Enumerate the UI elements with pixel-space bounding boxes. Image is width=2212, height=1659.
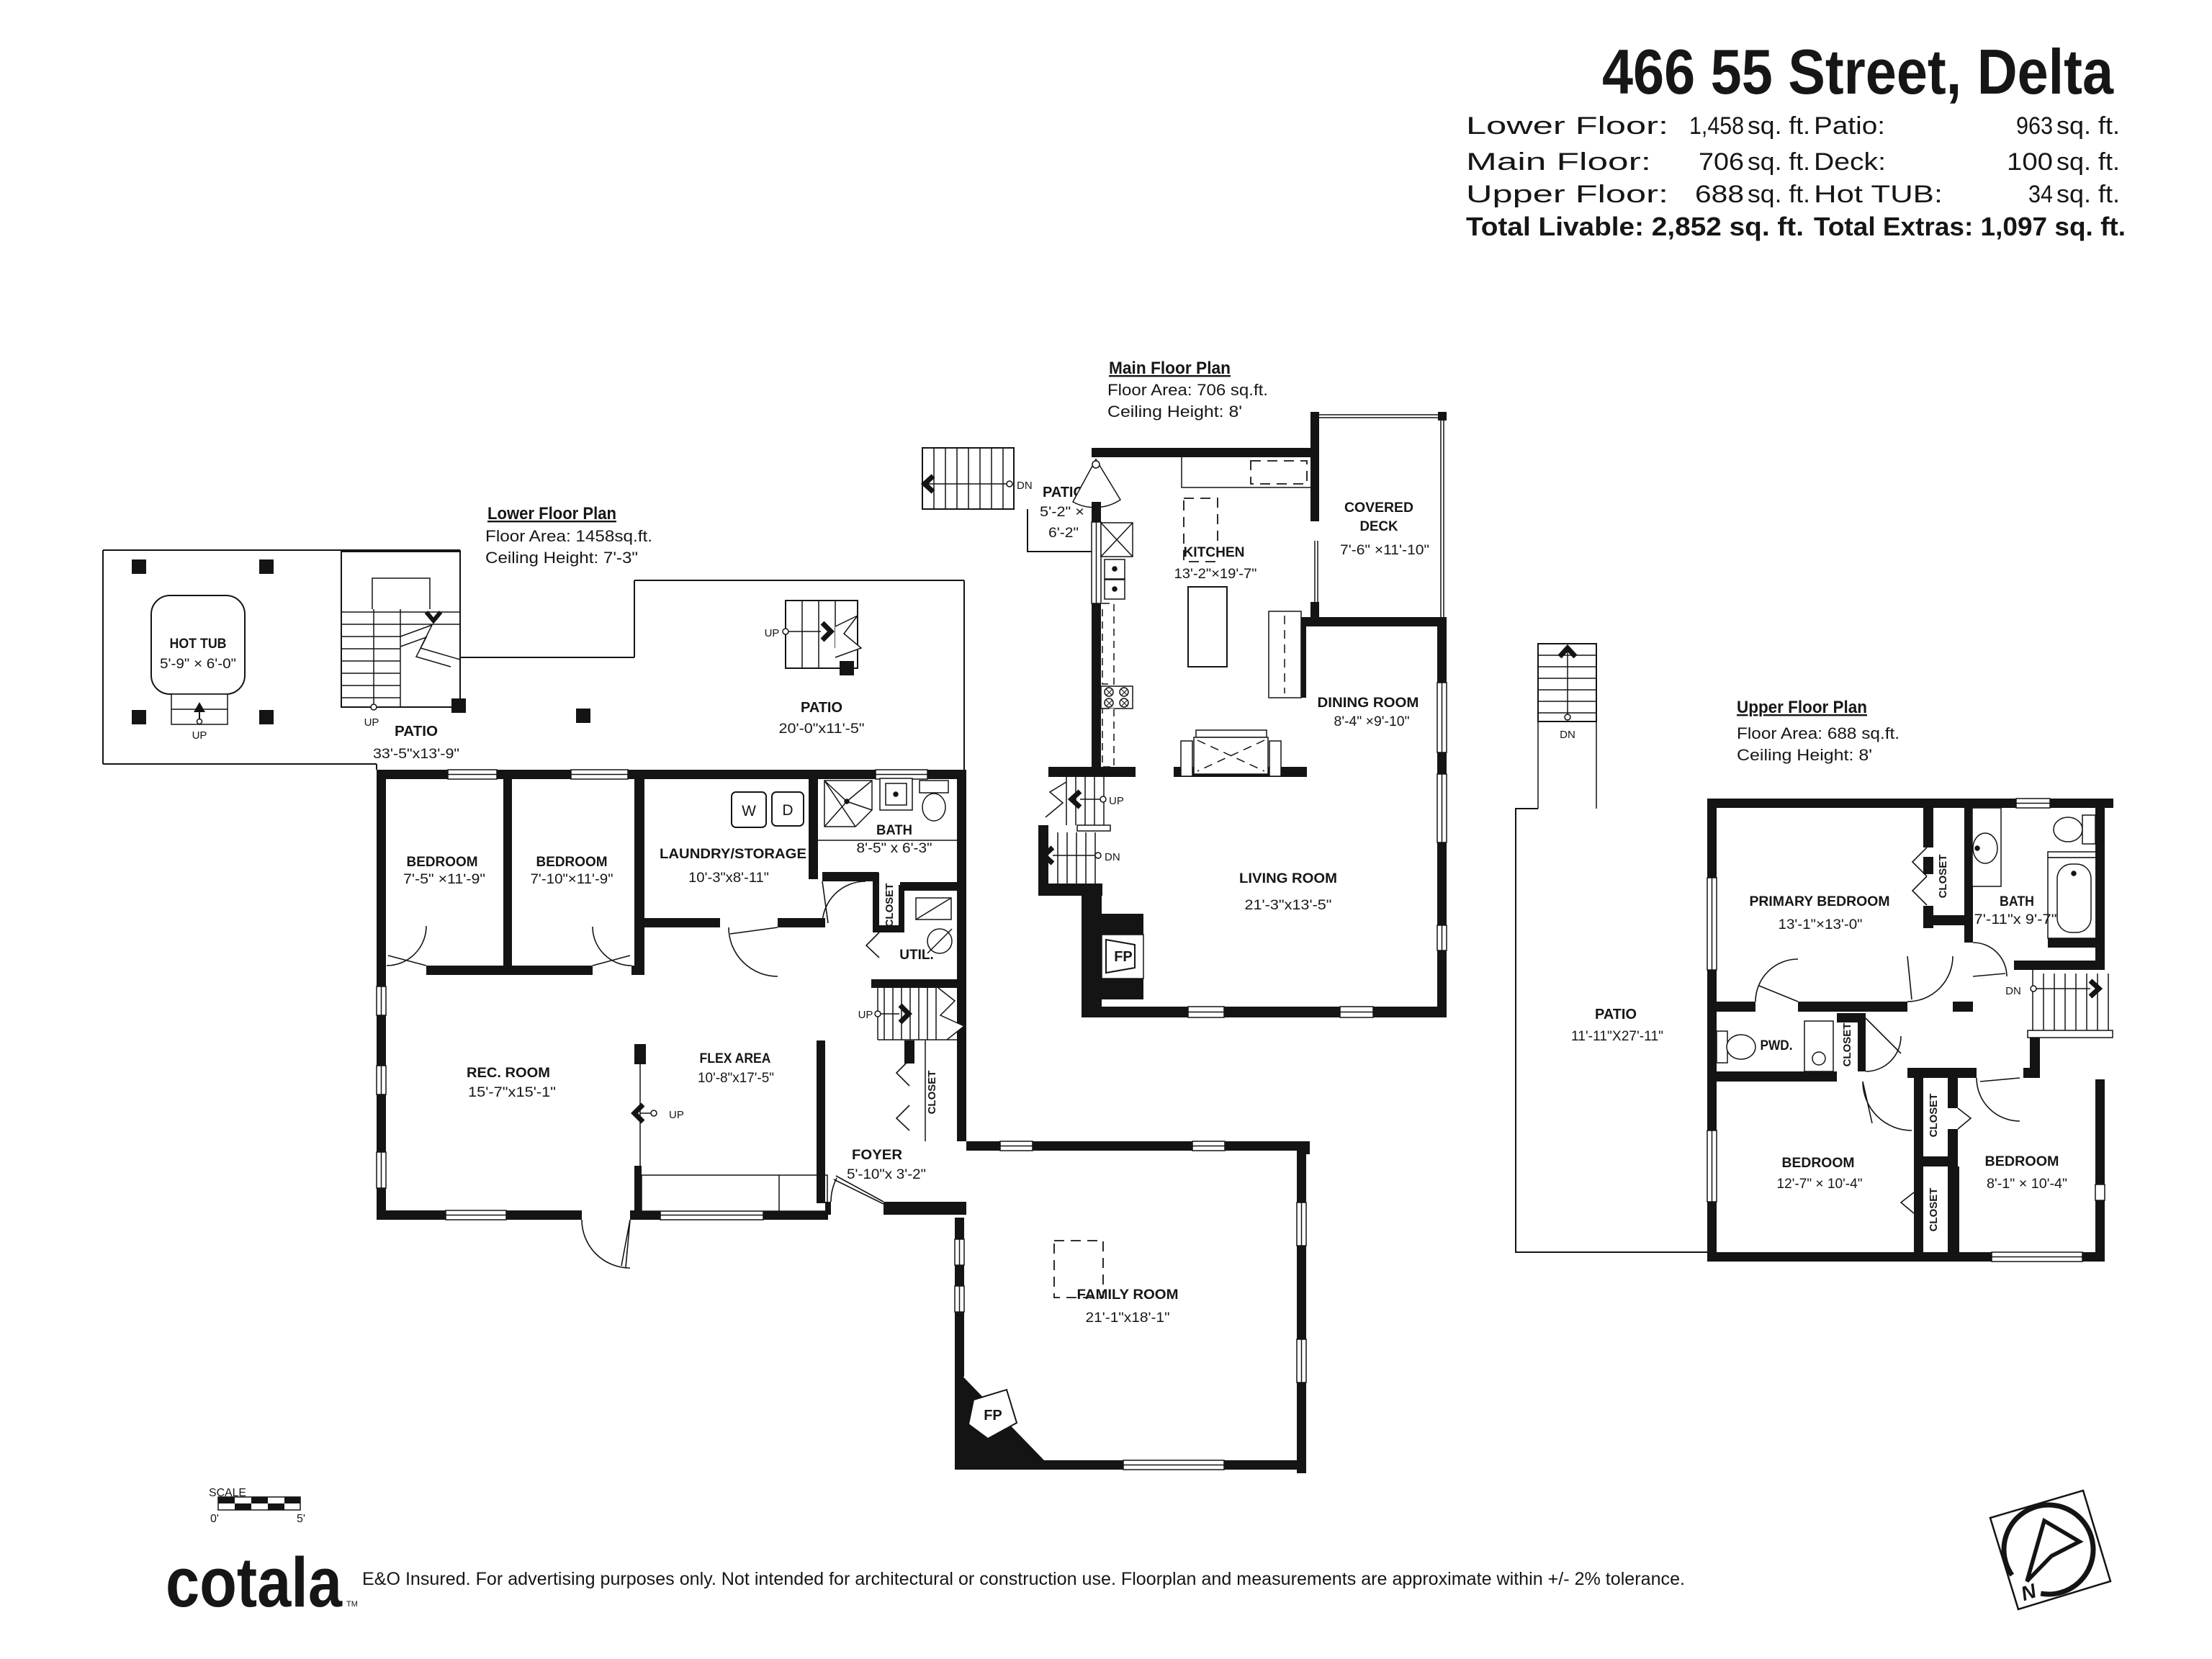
svg-text:W: W bbox=[742, 803, 756, 819]
svg-text:DECK: DECK bbox=[1360, 518, 1398, 534]
svg-text:5': 5' bbox=[297, 1513, 305, 1525]
svg-text:7'-10"×11'-9": 7'-10"×11'-9" bbox=[531, 872, 613, 887]
svg-text:5'-2" ×: 5'-2" × bbox=[1040, 505, 1084, 520]
svg-text:PATIO: PATIO bbox=[395, 724, 438, 739]
svg-text:8'-5" x 6'-3": 8'-5" x 6'-3" bbox=[857, 841, 932, 856]
svg-text:11'-11"X27'-11": 11'-11"X27'-11" bbox=[1571, 1029, 1663, 1044]
svg-text:7'-11"x 9'-7": 7'-11"x 9'-7" bbox=[1974, 912, 2057, 927]
svg-text:7'-6" ×11'-10": 7'-6" ×11'-10" bbox=[1340, 543, 1429, 558]
svg-text:Floor Area: 1458sq.ft.: Floor Area: 1458sq.ft. bbox=[485, 527, 652, 545]
svg-text:FLEX AREA: FLEX AREA bbox=[700, 1051, 771, 1066]
svg-text:21'-3"x13'-5": 21'-3"x13'-5" bbox=[1245, 898, 1332, 913]
svg-text:466 55 Street, Delta: 466 55 Street, Delta bbox=[1602, 36, 2114, 107]
svg-text:10'-8"x17'-5": 10'-8"x17'-5" bbox=[698, 1071, 774, 1086]
svg-text:BEDROOM: BEDROOM bbox=[536, 854, 608, 870]
svg-text:LAUNDRY/STORAGE: LAUNDRY/STORAGE bbox=[660, 846, 806, 862]
svg-text:8'-1" × 10'-4": 8'-1" × 10'-4" bbox=[1987, 1177, 2067, 1192]
svg-text:688: 688 bbox=[1695, 181, 1744, 208]
svg-text:KITCHEN: KITCHEN bbox=[1184, 544, 1245, 560]
svg-text:UP: UP bbox=[765, 627, 780, 639]
svg-text:20'-0"x11'-5": 20'-0"x11'-5" bbox=[779, 721, 865, 737]
svg-text:FOYER: FOYER bbox=[852, 1147, 902, 1163]
svg-text:COVERED: COVERED bbox=[1344, 500, 1413, 516]
svg-text:Upper Floor:: Upper Floor: bbox=[1466, 181, 1668, 208]
svg-text:CLOSET: CLOSET bbox=[1841, 1023, 1853, 1067]
svg-text:21'-1"x18'-1": 21'-1"x18'-1" bbox=[1086, 1310, 1170, 1326]
svg-text:BATH: BATH bbox=[876, 823, 912, 838]
svg-text:UP: UP bbox=[1109, 795, 1124, 807]
svg-text:10'-3"x8'-11": 10'-3"x8'-11" bbox=[688, 871, 769, 886]
svg-text:Lower Floor Plan: Lower Floor Plan bbox=[487, 504, 616, 523]
svg-text:BATH: BATH bbox=[2000, 894, 2034, 909]
svg-text:UP: UP bbox=[364, 716, 379, 729]
svg-text:DN: DN bbox=[1105, 851, 1120, 863]
svg-text:5'-10"x 3'-2": 5'-10"x 3'-2" bbox=[847, 1167, 926, 1182]
svg-text:BEDROOM: BEDROOM bbox=[1985, 1154, 2059, 1169]
svg-text:Floor Area: 706 sq.ft.: Floor Area: 706 sq.ft. bbox=[1107, 381, 1268, 399]
svg-text:CLOSET: CLOSET bbox=[1928, 1094, 1940, 1138]
svg-text:cotala: cotala bbox=[166, 1543, 343, 1622]
svg-text:UTIL.: UTIL. bbox=[899, 948, 934, 963]
svg-text:DN: DN bbox=[2005, 985, 2021, 997]
svg-text:Total Extras: 1,097 sq. ft.: Total Extras: 1,097 sq. ft. bbox=[1814, 212, 2126, 241]
svg-text:CLOSET: CLOSET bbox=[1928, 1188, 1940, 1232]
svg-text:CLOSET: CLOSET bbox=[884, 884, 896, 927]
svg-text:13'-2"×19'-7": 13'-2"×19'-7" bbox=[1174, 567, 1257, 582]
svg-text:Lower Floor:: Lower Floor: bbox=[1466, 112, 1668, 140]
svg-text:FP: FP bbox=[984, 1408, 1002, 1424]
svg-text:100: 100 bbox=[2007, 148, 2053, 176]
svg-text:BEDROOM: BEDROOM bbox=[1782, 1155, 1855, 1171]
svg-text:DINING ROOM: DINING ROOM bbox=[1318, 695, 1419, 711]
svg-text:sq. ft.: sq. ft. bbox=[2056, 148, 2120, 176]
svg-text:UP: UP bbox=[669, 1109, 684, 1121]
svg-text:Ceiling Height: 8': Ceiling Height: 8' bbox=[1737, 746, 1872, 764]
svg-text:REC. ROOM: REC. ROOM bbox=[467, 1065, 550, 1081]
svg-text:FP: FP bbox=[1114, 949, 1133, 965]
svg-text:Patio:: Patio: bbox=[1814, 112, 1885, 140]
svg-text:Upper Floor Plan: Upper Floor Plan bbox=[1737, 698, 1867, 717]
svg-text:BEDROOM: BEDROOM bbox=[407, 854, 478, 870]
svg-text:UP: UP bbox=[858, 1009, 873, 1021]
svg-text:Ceiling Height: 7'-3": Ceiling Height: 7'-3" bbox=[485, 549, 638, 567]
svg-text:HOT TUB: HOT TUB bbox=[170, 637, 227, 652]
svg-text:12'-7" × 10'-4": 12'-7" × 10'-4" bbox=[1777, 1177, 1863, 1192]
svg-text:15'-7"x15'-1": 15'-7"x15'-1" bbox=[468, 1085, 556, 1100]
svg-text:7'-5" ×11'-9": 7'-5" ×11'-9" bbox=[403, 872, 485, 887]
svg-text:Main Floor Plan: Main Floor Plan bbox=[1109, 359, 1231, 378]
svg-text:sq. ft.: sq. ft. bbox=[1748, 181, 1810, 208]
svg-text:8'-4" ×9'-10": 8'-4" ×9'-10" bbox=[1334, 714, 1410, 729]
svg-text:PATIO: PATIO bbox=[801, 700, 842, 716]
svg-text:sq. ft.: sq. ft. bbox=[2056, 181, 2120, 208]
svg-text:963: 963 bbox=[2016, 112, 2053, 140]
svg-text:Floor Area: 688 sq.ft.: Floor Area: 688 sq.ft. bbox=[1737, 724, 1899, 742]
svg-text:DN: DN bbox=[1560, 729, 1575, 741]
svg-text:PWD.: PWD. bbox=[1761, 1038, 1793, 1053]
svg-text:LIVING ROOM: LIVING ROOM bbox=[1239, 871, 1337, 886]
svg-text:Deck:: Deck: bbox=[1814, 148, 1886, 176]
svg-text:UP: UP bbox=[192, 729, 207, 742]
svg-text:33'-5"x13'-9": 33'-5"x13'-9" bbox=[373, 747, 459, 762]
svg-text:Main Floor:: Main Floor: bbox=[1466, 148, 1651, 176]
svg-text:1,458: 1,458 bbox=[1689, 112, 1744, 140]
svg-text:PRIMARY BEDROOM: PRIMARY BEDROOM bbox=[1750, 894, 1890, 909]
svg-text:sq. ft.: sq. ft. bbox=[1748, 148, 1810, 176]
svg-text:6'-2": 6'-2" bbox=[1048, 526, 1079, 541]
svg-text:DN: DN bbox=[1017, 480, 1033, 492]
svg-text:Total Livable: 2,852 sq. ft.: Total Livable: 2,852 sq. ft. bbox=[1466, 212, 1804, 241]
svg-text:CLOSET: CLOSET bbox=[926, 1071, 938, 1115]
svg-text:Hot TUB:: Hot TUB: bbox=[1814, 181, 1943, 208]
svg-text:TM: TM bbox=[346, 1600, 358, 1609]
svg-text:0': 0' bbox=[210, 1513, 219, 1525]
svg-text:sq. ft.: sq. ft. bbox=[1748, 112, 1810, 140]
svg-text:706: 706 bbox=[1699, 148, 1744, 176]
svg-text:CLOSET: CLOSET bbox=[1937, 855, 1949, 899]
svg-text:PATIO: PATIO bbox=[1595, 1007, 1637, 1022]
svg-text:34: 34 bbox=[2028, 181, 2053, 208]
svg-text:sq. ft.: sq. ft. bbox=[2056, 112, 2120, 140]
svg-text:Ceiling Height: 8': Ceiling Height: 8' bbox=[1107, 403, 1242, 421]
svg-text:E&O Insured. For advertising p: E&O Insured. For advertising purposes on… bbox=[362, 1569, 1685, 1589]
svg-text:FAMILY ROOM: FAMILY ROOM bbox=[1077, 1287, 1179, 1303]
svg-text:D: D bbox=[782, 802, 793, 819]
svg-text:13'-1"×13'-0": 13'-1"×13'-0" bbox=[1779, 917, 1863, 932]
svg-text:5'-9" × 6'-0": 5'-9" × 6'-0" bbox=[160, 657, 236, 672]
